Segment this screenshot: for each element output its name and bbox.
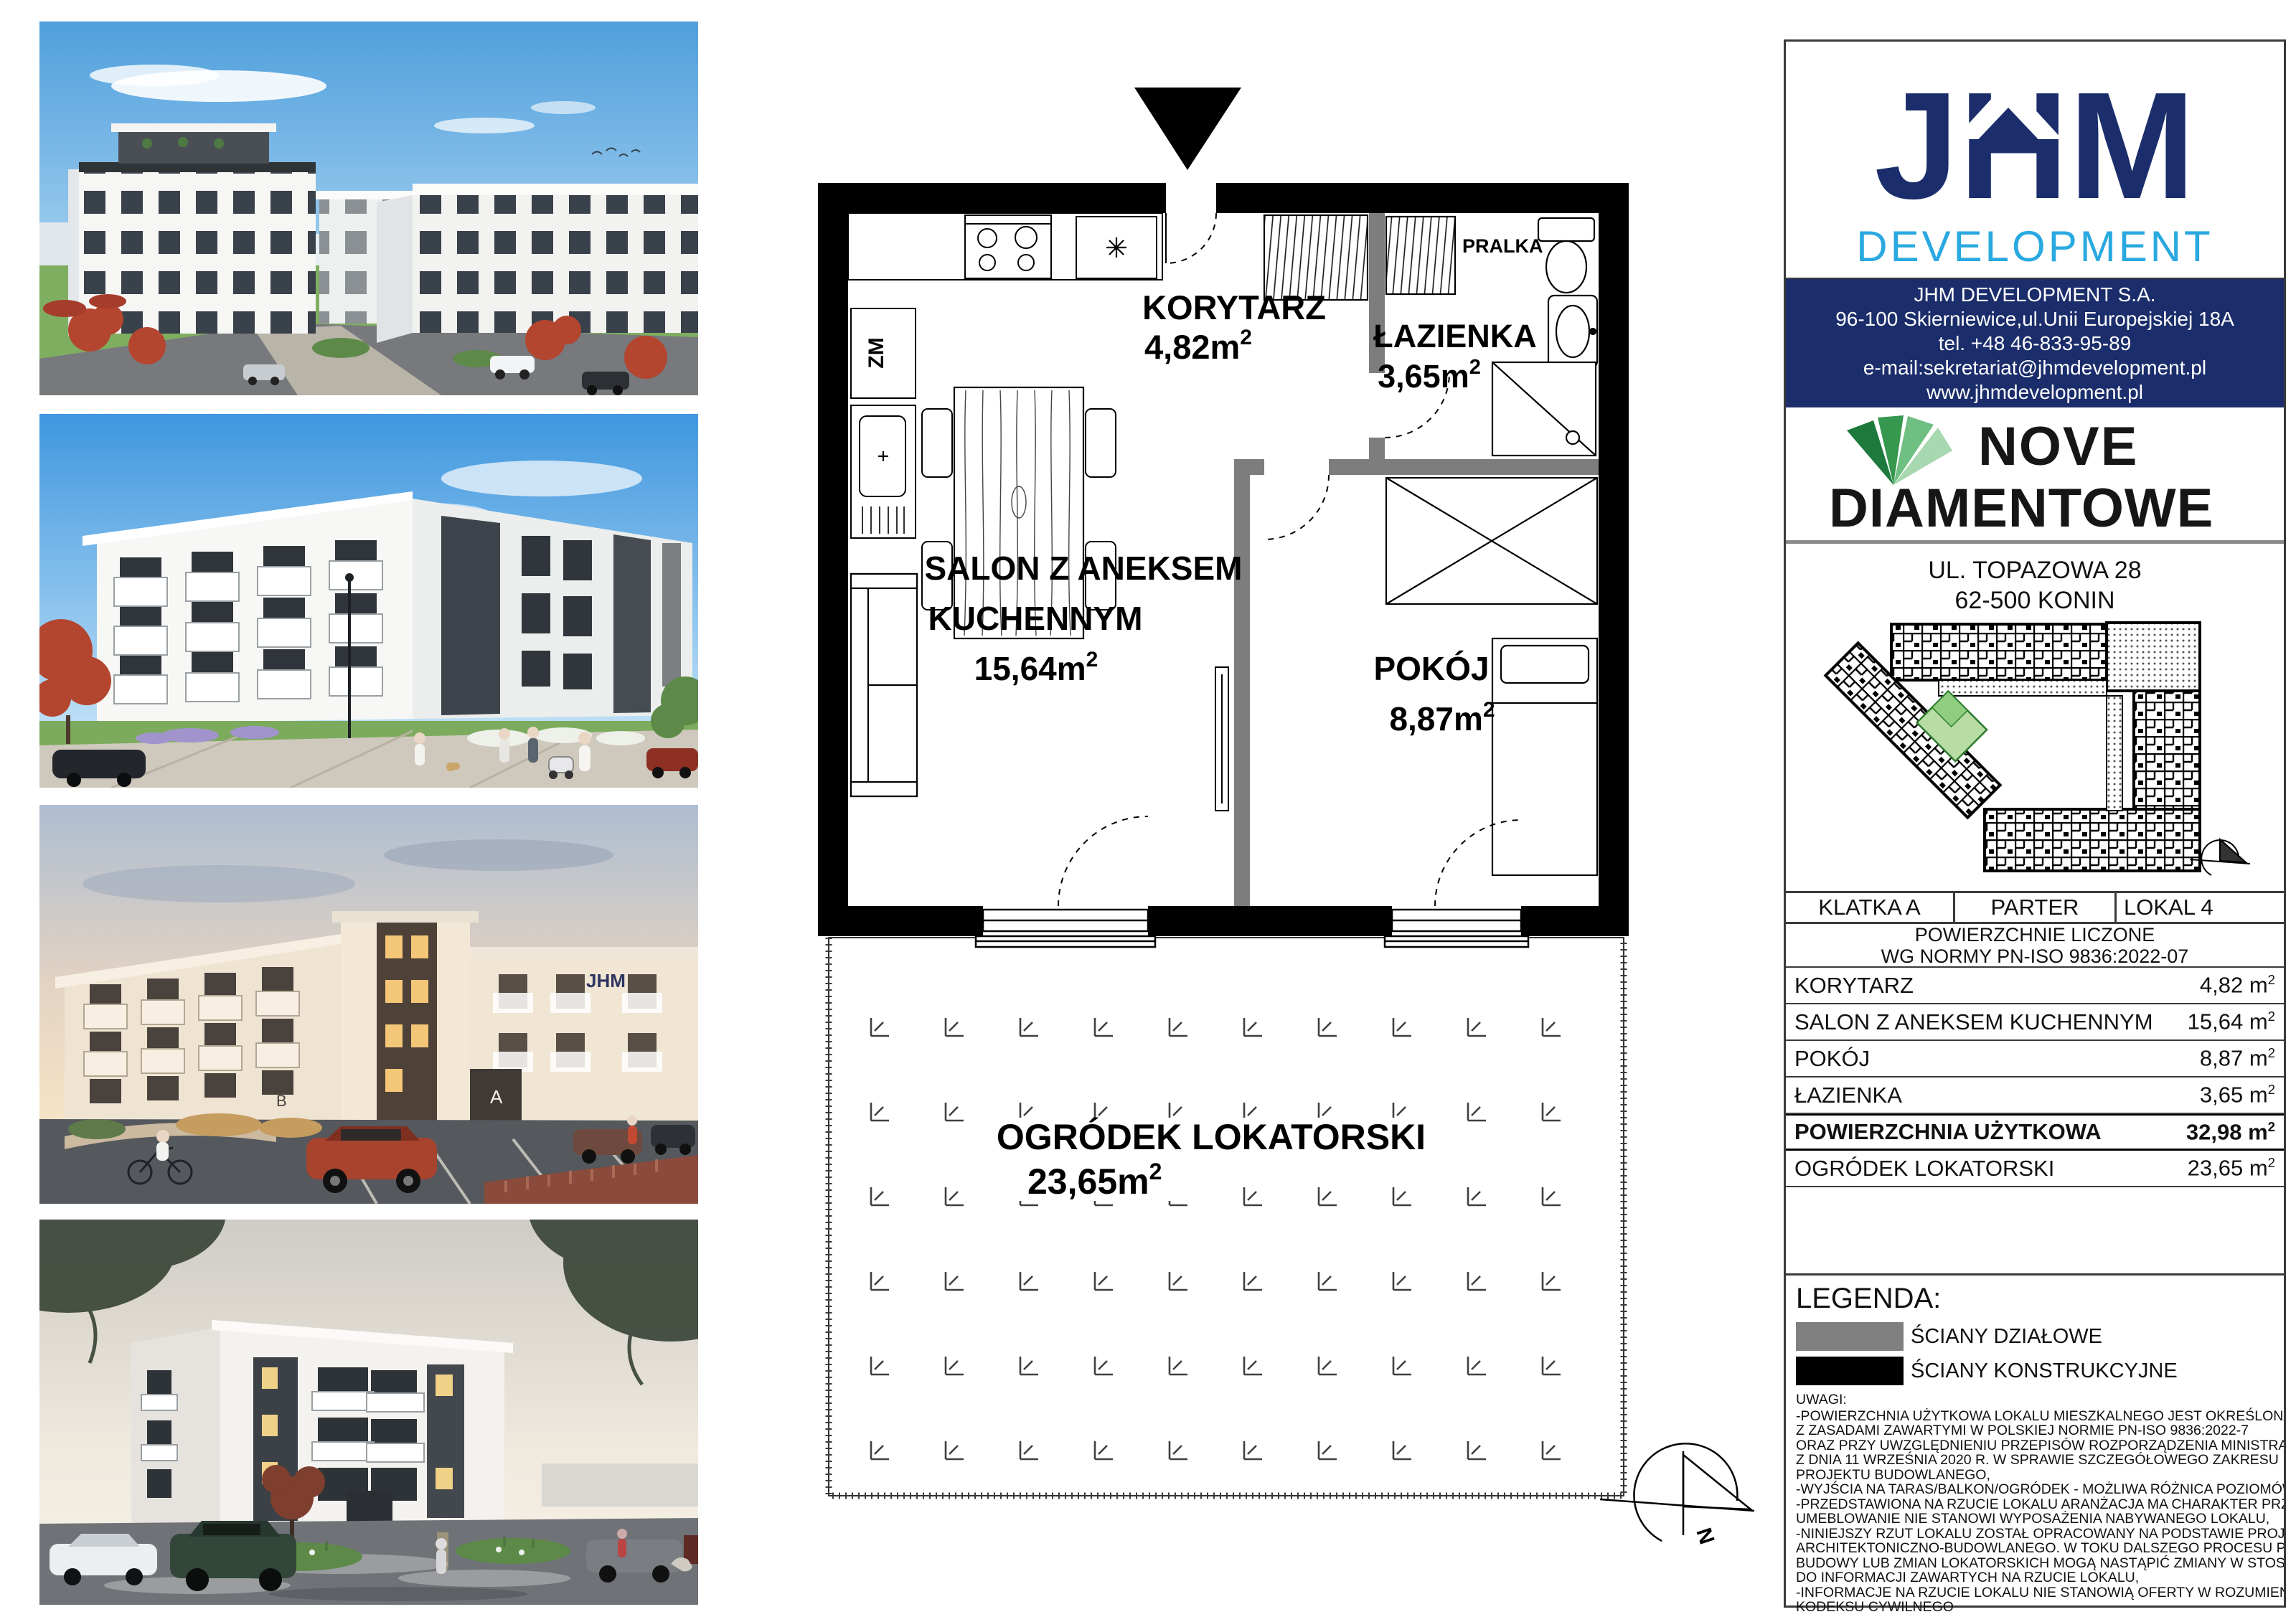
pokoj-window bbox=[1385, 910, 1528, 947]
garden-label: OGRÓDEK LOKATORSKI bbox=[997, 1117, 1426, 1157]
garden-area: 23,65m2 bbox=[1027, 1159, 1162, 1202]
tv-panel bbox=[1215, 667, 1228, 811]
area-row-total: POWIERZCHNIA UŻYTKOWA 32,98 m2 bbox=[1786, 1114, 2284, 1151]
photo-street-illustration bbox=[39, 414, 698, 788]
wardrobe-pokoj bbox=[1386, 478, 1597, 604]
label-lazienka: ŁAZIENKA bbox=[1373, 318, 1536, 354]
label-pokoj: POKÓJ bbox=[1373, 650, 1489, 687]
legend-item-partition: ŚCIANY DZIAŁOWE bbox=[1796, 1322, 2274, 1351]
norm-header: POWIERZCHNIE LICZONE WG NORMY PN-ISO 983… bbox=[1786, 924, 2284, 968]
partition-wall-swatch bbox=[1796, 1322, 1904, 1351]
area-row-pokoj: POKÓJ 8,87 m2 bbox=[1786, 1041, 2284, 1078]
kitchen-sink-symbol bbox=[1106, 237, 1126, 258]
contact-company: JHM DEVELOPMENT S.A. bbox=[1786, 283, 2284, 307]
contact-web: www.jhmdevelopment.pl bbox=[1786, 380, 2284, 405]
area-row-ogrodek: OGRÓDEK LOKATORSKI 23,65 m2 bbox=[1786, 1151, 2284, 1187]
unit-identification-row: KLATKA A PARTER LOKAL 4 bbox=[1786, 893, 2284, 924]
entrance-letter-a: A bbox=[490, 1086, 503, 1108]
entrance-marker-triangle bbox=[1134, 88, 1241, 170]
notes-title: UWAGI: bbox=[1796, 1392, 2274, 1408]
info-panel: JHM DEVELOPMENT JHM DEVELOPMENT S.A. 96-… bbox=[1784, 39, 2286, 1608]
unit-floor: PARTER bbox=[1955, 893, 2117, 922]
floor-plan: OGRÓDEK LOKATORSKI 23,65m2 bbox=[775, 72, 1765, 1607]
contact-email: e-mail:sekretariat@jhmdevelopment.pl bbox=[1786, 356, 2284, 380]
site-plan bbox=[1791, 616, 2279, 888]
compass-n-letter: N bbox=[1691, 1525, 1718, 1547]
svg-text:ZM: ZM bbox=[865, 337, 888, 368]
legend-block: LEGENDA: ŚCIANY DZIAŁOWE ŚCIANY KONSTRUK… bbox=[1786, 1276, 2284, 1621]
jhm-logo-block: JHM DEVELOPMENT bbox=[1786, 42, 2284, 279]
label-lazienka-area: 3,65m2 bbox=[1378, 356, 1481, 395]
diamond-icon bbox=[1847, 415, 1952, 485]
area-row-salon: SALON Z ANEKSEM KUCHENNYM 15,64 m2 bbox=[1786, 1004, 2284, 1041]
bed bbox=[1492, 638, 1597, 875]
facade-sign-jhm: JHM bbox=[586, 970, 626, 991]
label-salon-2: KUCHENNYM bbox=[928, 600, 1143, 637]
sink-cabinet bbox=[851, 405, 916, 538]
address-siteplan-block: UL. TOPAZOWA 28 62-500 KONIN bbox=[1786, 544, 2284, 893]
legend-item-structural: ŚCIANY KONSTRUKCYJNE bbox=[1796, 1357, 2274, 1385]
label-salon-area: 15,64m2 bbox=[974, 648, 1098, 687]
sofa bbox=[851, 574, 917, 796]
norm-line1: POWIERZCHNIE LICZONE bbox=[1786, 924, 2284, 946]
dishwasher-zm: ZM bbox=[851, 308, 916, 398]
render-photo-sunset: JHM A B bbox=[39, 805, 698, 1204]
brand-nove: NOVE bbox=[1978, 416, 2138, 477]
washing-machine bbox=[1386, 217, 1455, 294]
entrance-letter-b: B bbox=[276, 1092, 287, 1110]
brand-diamentowe: DIAMENTOWE bbox=[1829, 478, 2213, 539]
notes-block: UWAGI: -POWIERZCHNIA UŻYTKOWA LOKALU MIE… bbox=[1796, 1392, 2274, 1615]
address-city: 62-500 KONIN bbox=[1786, 585, 2284, 616]
photo-aerial-illustration bbox=[39, 22, 698, 395]
label-korytarz-area: 4,82m2 bbox=[1144, 326, 1252, 366]
salon-window bbox=[976, 910, 1155, 947]
empty-cell bbox=[1786, 1187, 2284, 1276]
label-pralka: PRALKA bbox=[1462, 235, 1543, 257]
render-photo-street-day bbox=[39, 414, 698, 788]
garden-ogrodek: OGRÓDEK LOKATORSKI 23,65m2 bbox=[829, 938, 1624, 1496]
render-photo-dusk-wet-street bbox=[39, 1220, 698, 1605]
legend-title: LEGENDA: bbox=[1796, 1283, 2274, 1315]
toilet bbox=[1538, 218, 1594, 293]
render-photo-aerial-day bbox=[39, 22, 698, 395]
unit-local: LOKAL 4 bbox=[2117, 893, 2284, 922]
area-row-lazienka: ŁAZIENKA 3,65 m2 bbox=[1786, 1078, 2284, 1114]
jhm-logo: JHM DEVELOPMENT bbox=[1820, 49, 2250, 279]
norm-line2: WG NORMY PN-ISO 9836:2022-07 bbox=[1786, 946, 2284, 967]
structural-wall-swatch bbox=[1796, 1357, 1904, 1385]
contact-phone: tel. +48 46-833-95-89 bbox=[1786, 331, 2284, 356]
jhm-logo-sub: DEVELOPMENT bbox=[1856, 222, 2213, 270]
address-street: UL. TOPAZOWA 28 bbox=[1786, 555, 2284, 585]
contact-address: 96-100 Skierniewice,ul.Unii Europejskiej… bbox=[1786, 307, 2284, 331]
label-salon-1: SALON Z ANEKSEM bbox=[925, 550, 1243, 587]
label-korytarz: KORYTARZ bbox=[1142, 288, 1326, 326]
label-pokoj-area: 8,87m2 bbox=[1389, 698, 1495, 737]
unit-stair: KLATKA A bbox=[1786, 893, 1955, 922]
photo-sunset-illustration: JHM A B bbox=[39, 805, 698, 1204]
photo-dusk-illustration bbox=[39, 1220, 698, 1605]
contact-block: JHM DEVELOPMENT S.A. 96-100 Skierniewice… bbox=[1786, 279, 2284, 407]
shower bbox=[1492, 362, 1596, 456]
area-row-korytarz: KORYTARZ 4,82 m2 bbox=[1786, 968, 2284, 1004]
nove-diamentowe-block: NOVE DIAMENTOWE bbox=[1786, 407, 2284, 544]
hall-wardrobe bbox=[1264, 215, 1368, 300]
washbasin bbox=[1548, 296, 1597, 367]
